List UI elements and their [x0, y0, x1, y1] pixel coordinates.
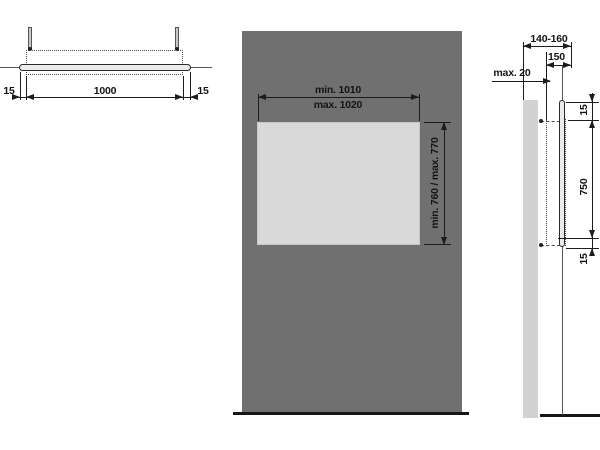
- arrowhead: [441, 237, 447, 245]
- side-niche-back-dotted: [546, 120, 547, 246]
- front-floor-line: [233, 412, 469, 415]
- side-fastener-top: [541, 121, 560, 122]
- arrowhead: [411, 94, 419, 100]
- plan-dim-label-width: 1000: [60, 85, 150, 97]
- front-dim-label-width-min: min. 1010: [293, 84, 383, 96]
- side-fastener-dot-bottom: [539, 243, 543, 247]
- front-ext-width-right: [419, 94, 420, 121]
- front-dim-line-height: [444, 122, 445, 245]
- technical-drawing: 15 1000 15 min. 1010 max. 1020 min. 760 …: [0, 0, 600, 450]
- side-dim-label-top-gap: 15: [578, 104, 590, 115]
- side-fastener-dot-top: [539, 119, 543, 123]
- arrowhead: [589, 120, 595, 128]
- side-niche-front-dotted: [565, 119, 566, 246]
- arrowhead: [26, 94, 34, 100]
- side-dim-label-depth-range: 140-160: [521, 33, 577, 45]
- front-mirror: [257, 122, 420, 245]
- front-dim-label-width-max: max. 1020: [293, 99, 383, 111]
- front-dim-line-width: [258, 97, 419, 98]
- side-dim-label-bottom-gap: 15: [578, 253, 590, 264]
- plan-niche-outline: [26, 50, 183, 75]
- side-dim-label-wall-clearance: max. 20: [490, 67, 534, 79]
- plan-mirror-profile: [19, 64, 191, 71]
- arrowhead: [441, 122, 447, 130]
- side-ext-mirror-top: [566, 102, 599, 103]
- plan-ext-bar-left: [20, 72, 21, 100]
- side-dim-label-height: 750: [578, 179, 590, 196]
- side-leader-wall-clearance: [492, 81, 550, 82]
- arrowhead: [543, 78, 551, 84]
- arrowhead: [589, 94, 595, 102]
- side-dim-label-depth: 150: [538, 51, 575, 63]
- arrowhead: [175, 94, 183, 100]
- plan-dim-label-left-gap: 15: [0, 85, 18, 97]
- arrowhead: [589, 230, 595, 238]
- arrowhead: [258, 94, 266, 100]
- side-wall-strip: [523, 100, 538, 418]
- side-floor-line: [540, 414, 600, 417]
- side-mirror-profile: [559, 100, 565, 247]
- plan-dim-line: [12, 97, 198, 98]
- plan-dim-label-right-gap: 15: [194, 85, 212, 97]
- front-dim-label-height: min. 760 / max. 770: [429, 137, 441, 228]
- side-fastener-bottom: [541, 245, 560, 246]
